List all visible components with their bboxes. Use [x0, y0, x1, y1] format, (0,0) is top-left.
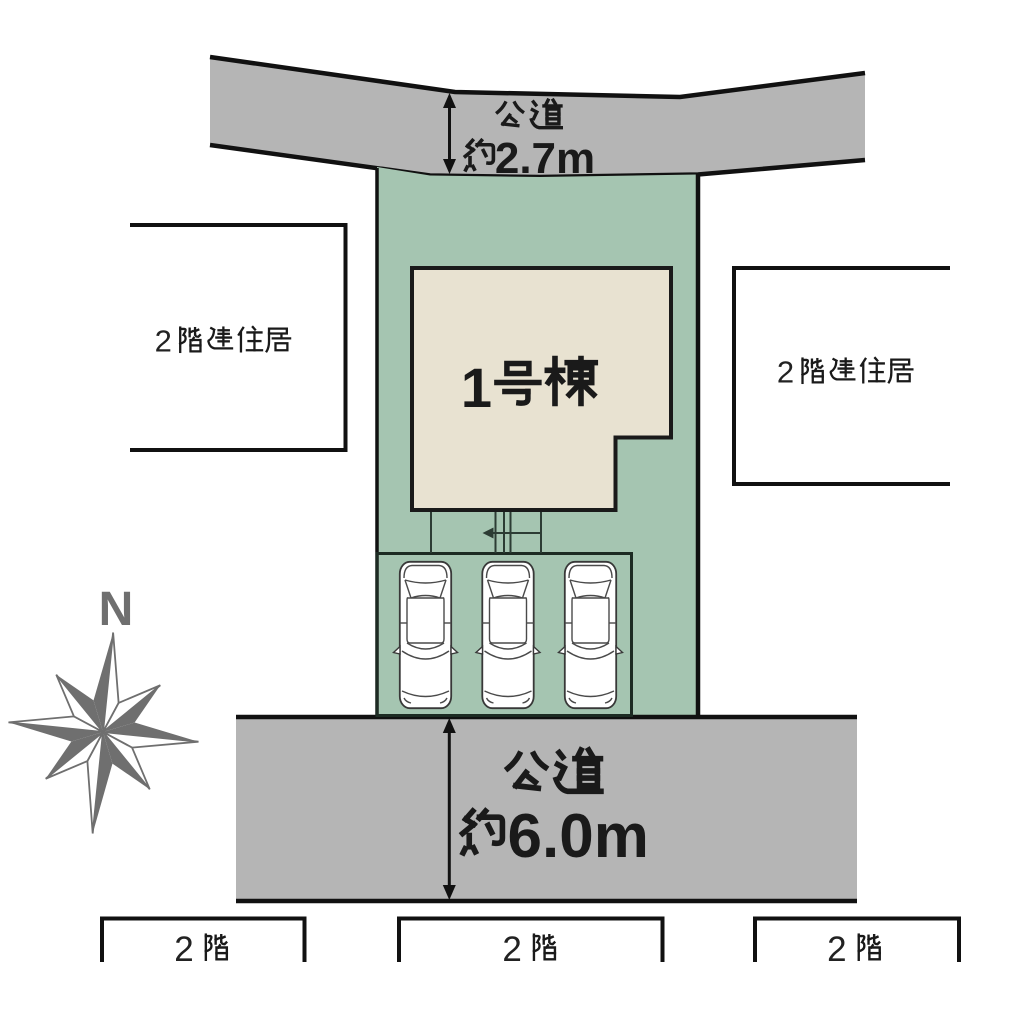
svg-text:2: 2 [174, 930, 193, 969]
svg-text:2.7m: 2.7m [495, 134, 595, 183]
svg-text:6.0m: 6.0m [508, 802, 649, 871]
svg-text:1: 1 [461, 356, 492, 419]
svg-text:2: 2 [502, 930, 521, 969]
svg-text:N: N [99, 583, 134, 636]
svg-text:2: 2 [155, 324, 172, 359]
svg-text:2: 2 [827, 930, 846, 969]
svg-text:2: 2 [777, 355, 794, 390]
